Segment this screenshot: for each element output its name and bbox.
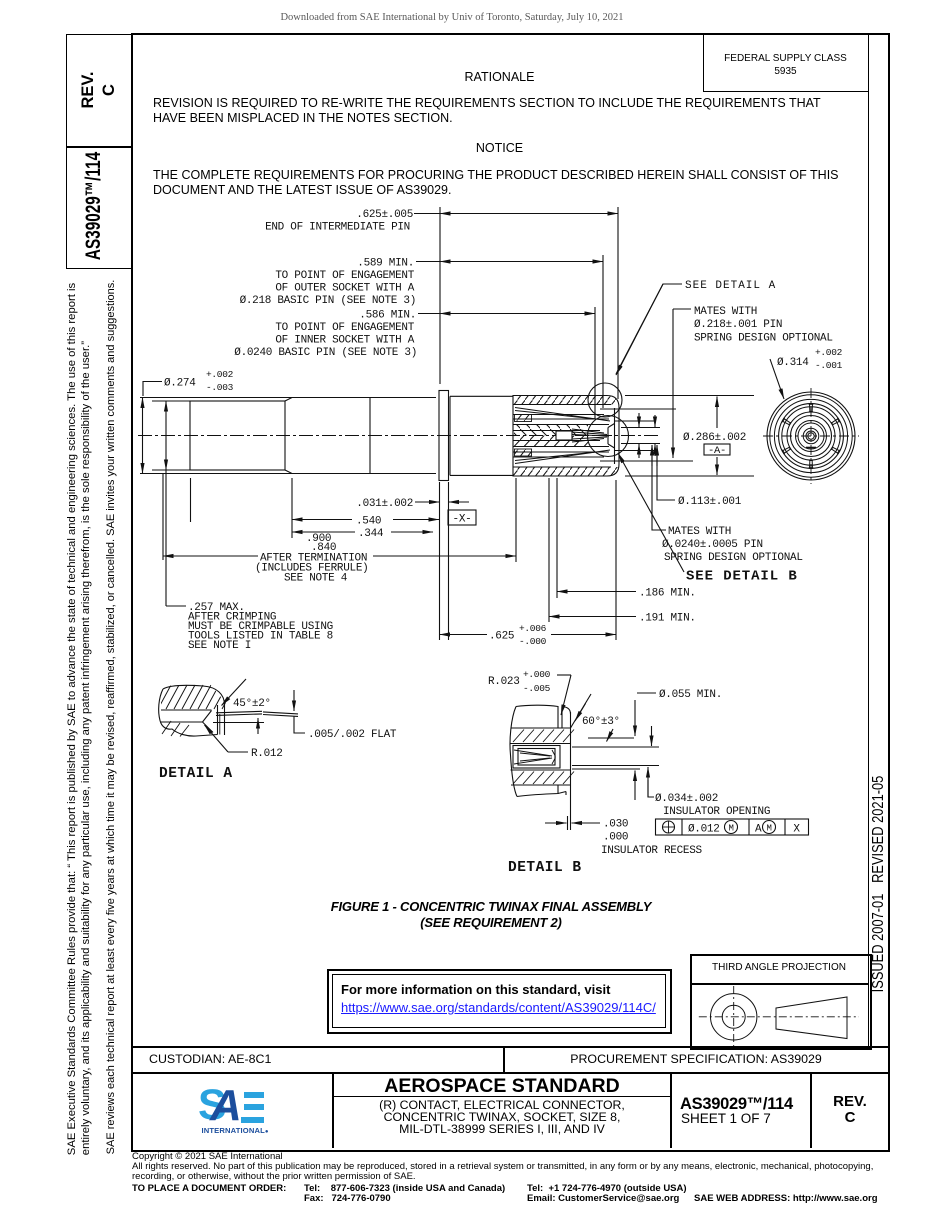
- svg-text:A: A: [755, 824, 762, 836]
- svg-text:.589 MIN.: .589 MIN.: [357, 258, 414, 270]
- svg-text:Ø.0240 BASIC PIN (SEE NOTE 3): Ø.0240 BASIC PIN (SEE NOTE 3): [234, 347, 417, 359]
- svg-text:-.000: -.000: [519, 636, 547, 647]
- svg-text:Ø.012: Ø.012: [688, 824, 720, 836]
- svg-text:M: M: [766, 824, 771, 834]
- svg-text:INSULATOR RECESS: INSULATOR RECESS: [601, 845, 703, 857]
- svg-text:M: M: [728, 824, 733, 834]
- svg-text:60°±3°: 60°±3°: [582, 716, 620, 728]
- svg-text:Ø.055 MIN.: Ø.055 MIN.: [659, 689, 722, 701]
- svg-text:-.001: -.001: [815, 360, 843, 371]
- svg-text:R.012: R.012: [251, 748, 283, 760]
- svg-text:SEE NOTE I: SEE NOTE I: [188, 640, 251, 652]
- svg-text:.191 MIN.: .191 MIN.: [639, 613, 696, 625]
- svg-text:SPRING DESIGN OPTIONAL: SPRING DESIGN OPTIONAL: [694, 333, 833, 345]
- svg-text:TO POINT OF ENGAGEMENT: TO POINT OF ENGAGEMENT: [275, 322, 414, 334]
- svg-text:.625±.005: .625±.005: [356, 209, 413, 221]
- svg-text:-.003: -.003: [206, 382, 234, 393]
- svg-text:.031±.002: .031±.002: [356, 498, 413, 510]
- svg-text:-X-: -X-: [453, 514, 472, 526]
- svg-text:.344: .344: [358, 528, 384, 540]
- svg-text:Ø.314: Ø.314: [777, 357, 809, 369]
- svg-text:+.006: +.006: [519, 623, 547, 634]
- svg-text:+.002: +.002: [206, 369, 234, 380]
- svg-text:OF OUTER SOCKET WITH A: OF OUTER SOCKET WITH A: [275, 283, 414, 295]
- svg-text:.005/.002 FLAT: .005/.002 FLAT: [308, 729, 397, 741]
- svg-text:SEE NOTE 4: SEE NOTE 4: [284, 573, 348, 585]
- svg-text:.186 MIN.: .186 MIN.: [639, 588, 696, 600]
- svg-text:.625: .625: [489, 631, 514, 643]
- svg-text:X: X: [793, 824, 800, 836]
- svg-text:SPRING DESIGN OPTIONAL: SPRING DESIGN OPTIONAL: [664, 552, 803, 564]
- svg-text:Ø.0240±.0005 PIN: Ø.0240±.0005 PIN: [662, 539, 763, 551]
- svg-text:DETAIL A: DETAIL A: [159, 766, 233, 782]
- svg-text:MATES WITH: MATES WITH: [668, 526, 731, 538]
- svg-text:45°±2°: 45°±2°: [233, 698, 271, 710]
- svg-text:.000: .000: [603, 832, 628, 844]
- svg-text:DETAIL B: DETAIL B: [508, 860, 582, 876]
- svg-text:-A-: -A-: [708, 445, 726, 457]
- svg-text:MATES WITH: MATES WITH: [694, 306, 757, 318]
- svg-text:TO POINT OF ENGAGEMENT: TO POINT OF ENGAGEMENT: [275, 270, 414, 282]
- svg-text:Ø.286±.002: Ø.286±.002: [683, 432, 746, 444]
- svg-text:.586 MIN.: .586 MIN.: [359, 310, 416, 322]
- svg-text:Ø.218±.001 PIN: Ø.218±.001 PIN: [694, 319, 782, 331]
- svg-text:END OF INTERMEDIATE PIN: END OF INTERMEDIATE PIN: [265, 222, 410, 234]
- svg-text:Ø.034±.002: Ø.034±.002: [655, 793, 718, 805]
- svg-text:Ø.218 BASIC PIN (SEE NOTE 3): Ø.218 BASIC PIN (SEE NOTE 3): [240, 295, 416, 307]
- svg-text:.030: .030: [603, 819, 628, 831]
- svg-text:SEE DETAIL A: SEE DETAIL A: [685, 280, 776, 292]
- svg-text:SEE DETAIL B: SEE DETAIL B: [686, 569, 798, 585]
- svg-text:+.000: +.000: [523, 669, 551, 680]
- svg-text:-.005: -.005: [523, 683, 551, 694]
- svg-text:INSULATOR OPENING: INSULATOR OPENING: [663, 806, 770, 818]
- svg-text:Ø.113±.001: Ø.113±.001: [678, 496, 742, 508]
- svg-text:.540: .540: [356, 516, 381, 528]
- svg-text:OF INNER SOCKET WITH A: OF INNER SOCKET WITH A: [275, 335, 414, 347]
- svg-text:+.002: +.002: [815, 347, 843, 358]
- svg-text:Ø.274: Ø.274: [164, 378, 196, 390]
- svg-text:R.023: R.023: [488, 676, 520, 688]
